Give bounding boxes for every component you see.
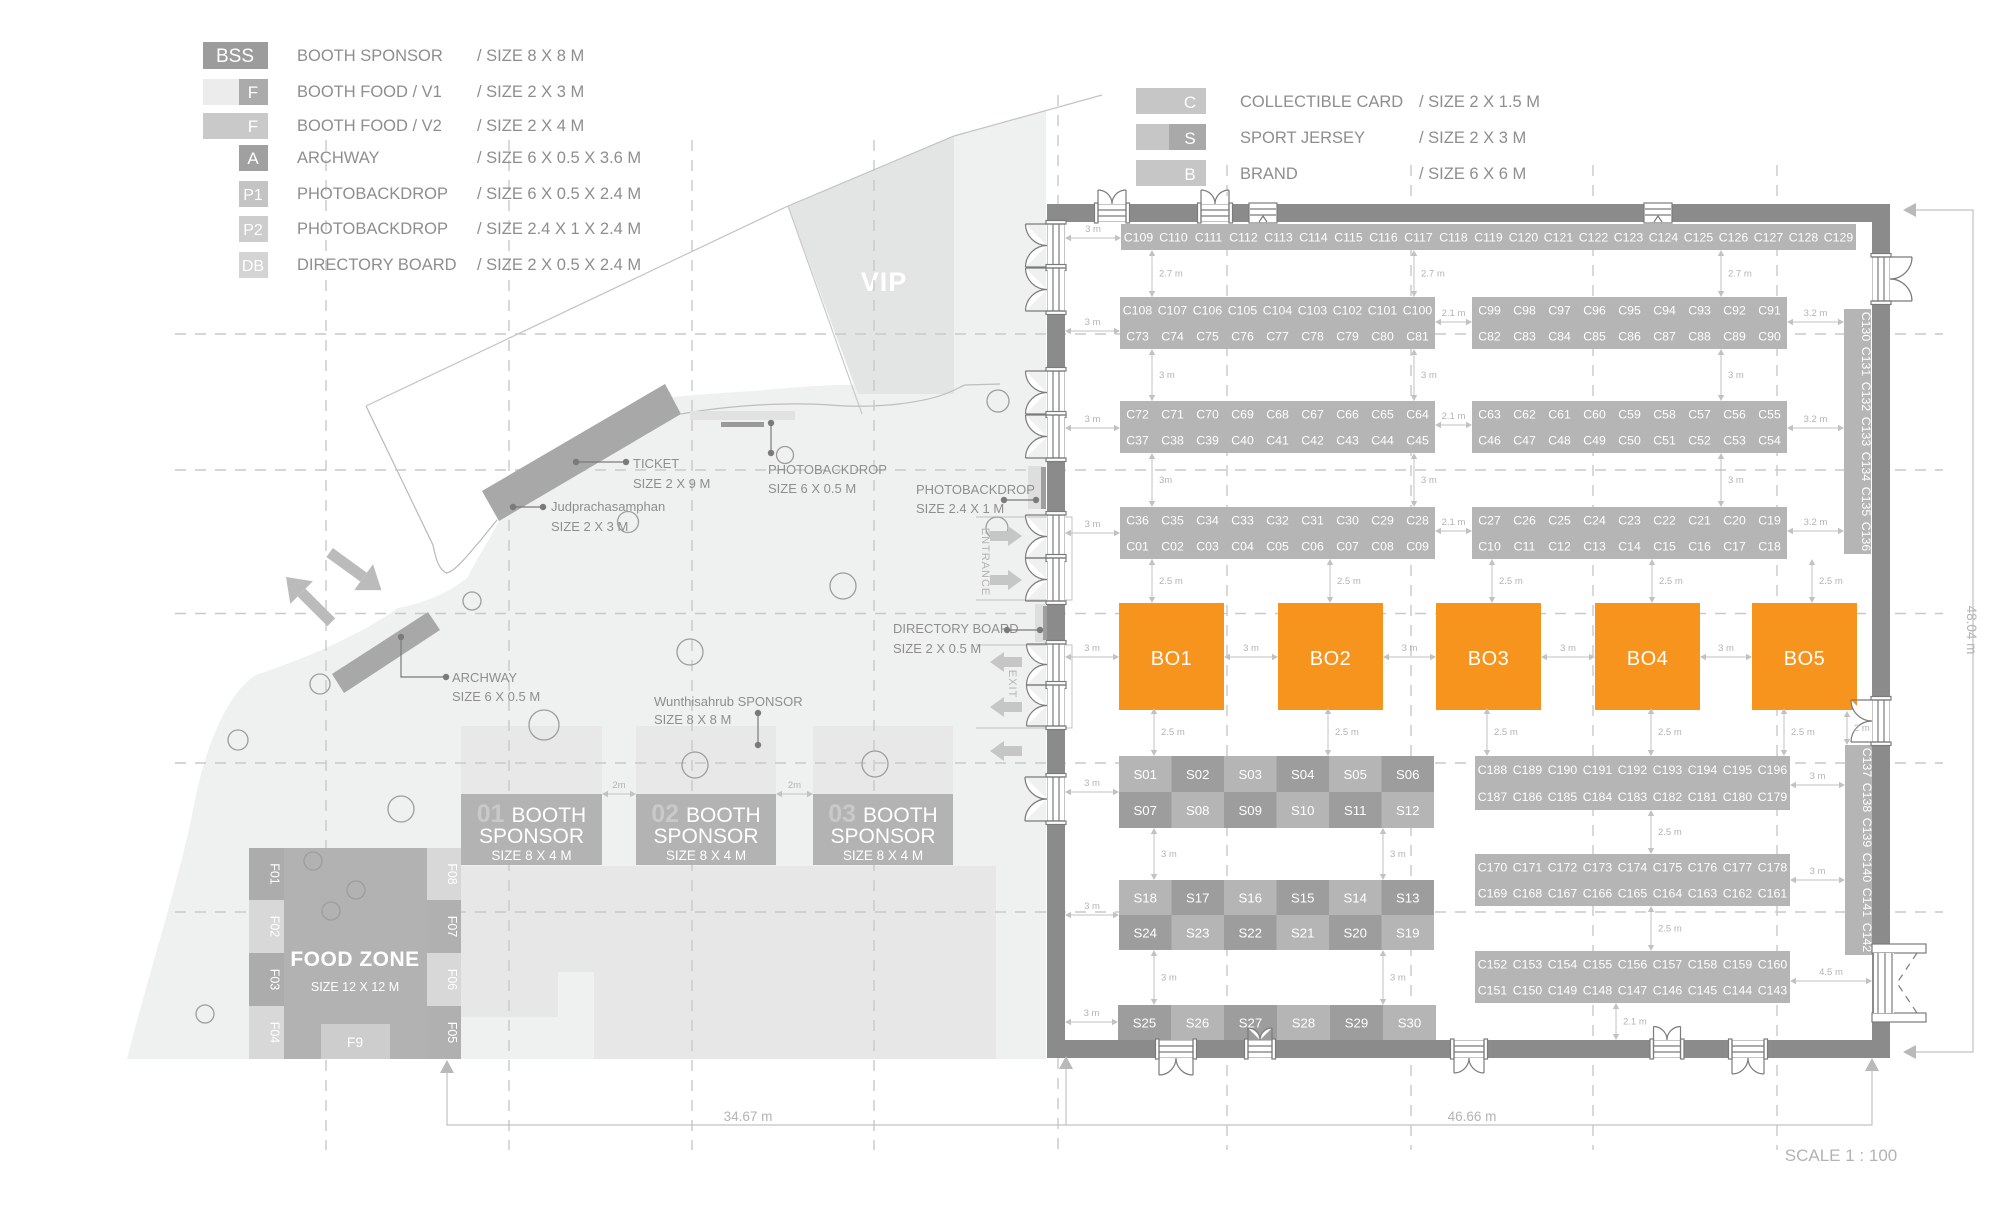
svg-text:C157: C157 [1653,957,1683,971]
svg-text:SPONSOR: SPONSOR [653,825,758,848]
svg-text:BO3: BO3 [1468,648,1510,670]
svg-text:C34: C34 [1196,513,1219,527]
svg-text:C74: C74 [1161,329,1184,343]
svg-text:C82: C82 [1478,329,1501,343]
svg-text:SIZE 2.4 X 1 M: SIZE 2.4 X 1 M [916,501,1004,516]
svg-text:C84: C84 [1548,329,1571,343]
svg-text:3 m: 3 m [1390,973,1406,984]
svg-text:S04: S04 [1291,767,1314,782]
svg-text:2.5 m: 2.5 m [1658,924,1682,935]
svg-text:C152: C152 [1478,957,1508,971]
svg-text:C187: C187 [1478,790,1508,804]
svg-text:S02: S02 [1186,767,1209,782]
svg-text:C167: C167 [1548,886,1578,900]
svg-text:S28: S28 [1292,1015,1315,1030]
svg-text:C134: C134 [1859,452,1873,482]
svg-text:SPONSOR: SPONSOR [830,825,935,848]
svg-text:C41: C41 [1266,433,1289,447]
svg-text:C162: C162 [1723,886,1753,900]
svg-text:C161: C161 [1758,886,1788,900]
svg-text:C42: C42 [1301,433,1324,447]
svg-text:C131: C131 [1859,347,1873,377]
svg-text:C107: C107 [1158,303,1188,317]
svg-text:C124: C124 [1649,230,1679,244]
svg-text:C166: C166 [1583,886,1613,900]
svg-text:2.7 m: 2.7 m [1728,269,1752,280]
svg-text:2.5 m: 2.5 m [1659,576,1683,587]
svg-text:C28: C28 [1406,513,1429,527]
svg-text:C159: C159 [1723,957,1753,971]
svg-text:C181: C181 [1688,790,1718,804]
svg-text:C43: C43 [1336,433,1359,447]
svg-text:C149: C149 [1548,983,1578,997]
svg-text:C21: C21 [1688,513,1711,527]
svg-text:/ SIZE 2 X 3 M: / SIZE 2 X 3 M [477,83,584,101]
svg-text:C151: C151 [1478,983,1508,997]
svg-text:3 m: 3 m [1161,849,1177,860]
svg-text:C62: C62 [1513,407,1536,421]
svg-text:F: F [248,83,258,102]
svg-text:SIZE 2 X 3 M: SIZE 2 X 3 M [551,519,628,534]
svg-text:C144: C144 [1723,983,1753,997]
svg-text:S19: S19 [1396,925,1419,940]
svg-text:F05: F05 [445,1022,459,1044]
svg-text:2m: 2m [788,780,801,791]
svg-text:S: S [1184,129,1195,148]
svg-text:2m: 2m [612,780,625,791]
svg-text:S15: S15 [1291,890,1314,905]
svg-text:3.2 m: 3.2 m [1804,517,1828,528]
svg-text:C25: C25 [1548,513,1571,527]
svg-text:BO1: BO1 [1151,648,1193,670]
svg-text:S13: S13 [1396,890,1419,905]
svg-text:C91: C91 [1758,303,1781,317]
svg-text:C63: C63 [1478,407,1501,421]
svg-text:3 m: 3 m [1810,771,1826,782]
svg-text:C01: C01 [1126,539,1149,553]
svg-text:3 m: 3 m [1421,370,1437,381]
svg-text:S17: S17 [1186,890,1209,905]
svg-text:02 BOOTH: 02 BOOTH [651,800,760,828]
svg-text:SIZE 6 X 0.5 M: SIZE 6 X 0.5 M [768,481,856,496]
svg-text:SIZE 6 X 0.5 M: SIZE 6 X 0.5 M [452,689,540,704]
svg-text:C100: C100 [1403,303,1433,317]
svg-text:C07: C07 [1336,539,1359,553]
svg-text:C49: C49 [1583,433,1606,447]
svg-text:C113: C113 [1264,230,1293,244]
svg-text:C19: C19 [1758,513,1781,527]
svg-text:S21: S21 [1291,925,1314,940]
svg-text:C71: C71 [1161,407,1184,421]
svg-text:C130: C130 [1859,312,1873,342]
svg-text:C76: C76 [1231,329,1254,343]
svg-text:C04: C04 [1231,539,1254,553]
svg-text:C47: C47 [1513,433,1536,447]
svg-text:/ SIZE 2 X 0.5 X 2.4 M: / SIZE 2 X 0.5 X 2.4 M [477,256,641,274]
svg-text:SIZE 8 X 4 M: SIZE 8 X 4 M [843,848,923,863]
svg-text:03 BOOTH: 03 BOOTH [828,800,937,828]
svg-text:F9: F9 [347,1034,364,1050]
svg-text:C112: C112 [1229,230,1258,244]
svg-text:C103: C103 [1298,303,1328,317]
svg-text:C122: C122 [1579,230,1609,244]
svg-text:/ SIZE 6 X 6 M: / SIZE 6 X 6 M [1419,165,1526,183]
svg-text:C172: C172 [1548,860,1578,874]
svg-text:S08: S08 [1186,803,1209,818]
svg-text:DIRECTORY BOARD: DIRECTORY BOARD [297,256,457,274]
svg-text:C194: C194 [1688,763,1718,777]
svg-text:C15: C15 [1653,539,1676,553]
svg-text:C40: C40 [1231,433,1254,447]
svg-text:4.5 m: 4.5 m [1819,967,1843,978]
svg-text:C174: C174 [1618,860,1648,874]
svg-text:2.7 m: 2.7 m [1421,269,1445,280]
svg-text:C176: C176 [1688,860,1718,874]
svg-text:SIZE 8 X 4 M: SIZE 8 X 4 M [491,848,571,863]
svg-text:C51: C51 [1653,433,1676,447]
svg-text:C163: C163 [1688,886,1718,900]
svg-text:PHOTOBACKDROP: PHOTOBACKDROP [297,220,448,238]
svg-text:C120: C120 [1509,230,1539,244]
svg-text:C: C [1184,93,1196,112]
svg-text:2.1 m: 2.1 m [1442,308,1466,319]
svg-text:C143: C143 [1758,983,1788,997]
svg-text:3.2 m: 3.2 m [1804,414,1828,425]
svg-text:3 m: 3 m [1810,866,1826,877]
svg-text:Wunthisahrub SPONSOR: Wunthisahrub SPONSOR [654,694,803,709]
svg-text:/ SIZE 6 X 0.5 X 3.6 M: / SIZE 6 X 0.5 X 3.6 M [477,149,641,167]
svg-text:S14: S14 [1344,890,1367,905]
svg-text:C96: C96 [1583,303,1606,317]
svg-text:BOOTH FOOD / V2: BOOTH FOOD / V2 [297,117,442,135]
svg-text:C101: C101 [1368,303,1398,317]
svg-text:FOOD ZONE: FOOD ZONE [290,948,419,971]
svg-text:BO5: BO5 [1784,648,1826,670]
svg-text:2.5 m: 2.5 m [1658,827,1682,838]
svg-text:C99: C99 [1478,303,1501,317]
svg-text:C165: C165 [1618,886,1648,900]
svg-text:C155: C155 [1583,957,1613,971]
svg-text:C54: C54 [1758,433,1781,447]
svg-text:C87: C87 [1653,329,1676,343]
svg-text:C147: C147 [1618,983,1648,997]
svg-text:F04: F04 [268,1022,282,1044]
svg-text:C182: C182 [1653,790,1683,804]
svg-text:C93: C93 [1688,303,1711,317]
svg-text:C13: C13 [1583,539,1606,553]
svg-text:C46: C46 [1478,433,1501,447]
svg-text:C111: C111 [1195,230,1223,244]
svg-text:SIZE 8 X 8 M: SIZE 8 X 8 M [654,712,731,727]
svg-text:SCALE 1 : 100: SCALE 1 : 100 [1785,1146,1897,1165]
svg-text:C86: C86 [1618,329,1641,343]
svg-text:C164: C164 [1653,886,1683,900]
svg-text:C83: C83 [1513,329,1536,343]
svg-text:2 m: 2 m [1854,723,1870,734]
svg-text:C58: C58 [1653,407,1676,421]
svg-text:C183: C183 [1618,790,1648,804]
svg-text:3 m: 3 m [1084,901,1100,912]
svg-text:S03: S03 [1239,767,1262,782]
svg-text:C18: C18 [1758,539,1781,553]
svg-text:C138: C138 [1860,783,1874,813]
svg-text:C180: C180 [1723,790,1753,804]
svg-text:F: F [248,117,258,136]
svg-text:S12: S12 [1396,803,1419,818]
svg-text:C61: C61 [1548,407,1571,421]
svg-text:C158: C158 [1688,957,1718,971]
svg-text:C116: C116 [1369,230,1398,244]
svg-text:3 m: 3 m [1421,475,1437,486]
svg-text:C95: C95 [1618,303,1641,317]
svg-text:C12: C12 [1548,539,1571,553]
svg-text:C50: C50 [1618,433,1641,447]
svg-text:C48: C48 [1548,433,1571,447]
svg-text:C85: C85 [1583,329,1606,343]
svg-text:C135: C135 [1859,487,1873,517]
svg-text:3 m: 3 m [1084,643,1100,654]
svg-text:S20: S20 [1344,925,1367,940]
svg-text:S29: S29 [1345,1015,1368,1030]
svg-text:S25: S25 [1133,1015,1156,1030]
svg-text:/ SIZE 8 X 8 M: / SIZE 8 X 8 M [477,47,584,65]
svg-text:A: A [247,149,259,168]
svg-text:C105: C105 [1228,303,1258,317]
svg-text:C24: C24 [1583,513,1606,527]
svg-text:F08: F08 [445,863,459,885]
svg-text:C97: C97 [1548,303,1571,317]
svg-text:C186: C186 [1513,790,1543,804]
svg-text:C64: C64 [1406,407,1429,421]
svg-text:C10: C10 [1478,539,1501,553]
svg-text:C65: C65 [1371,407,1394,421]
svg-text:C73: C73 [1126,329,1149,343]
svg-text:48.04 m: 48.04 m [1964,606,1979,655]
svg-text:TICKET: TICKET [633,456,679,471]
svg-text:S26: S26 [1186,1015,1209,1030]
svg-text:C78: C78 [1301,329,1324,343]
svg-text:C189: C189 [1513,763,1543,777]
svg-text:S07: S07 [1134,803,1157,818]
svg-text:/ SIZE 2 X 1.5 M: / SIZE 2 X 1.5 M [1419,93,1540,111]
svg-text:3.2 m: 3.2 m [1804,308,1828,319]
svg-text:C56: C56 [1723,407,1746,421]
svg-text:PHOTOBACKDROP: PHOTOBACKDROP [916,482,1035,497]
svg-text:C192: C192 [1618,763,1648,777]
svg-text:C137: C137 [1860,748,1874,778]
svg-text:C121: C121 [1544,230,1574,244]
svg-text:2.5 m: 2.5 m [1335,727,1359,738]
svg-text:C05: C05 [1266,539,1289,553]
svg-text:C67: C67 [1301,407,1324,421]
svg-text:C89: C89 [1723,329,1746,343]
svg-text:C68: C68 [1266,407,1289,421]
svg-text:C17: C17 [1723,539,1746,553]
svg-text:C59: C59 [1618,407,1641,421]
svg-text:SIZE 2 X 9 M: SIZE 2 X 9 M [633,476,710,491]
svg-text:C66: C66 [1336,407,1359,421]
svg-text:S18: S18 [1134,890,1157,905]
svg-text:C104: C104 [1263,303,1293,317]
svg-text:C115: C115 [1334,230,1363,244]
svg-text:C22: C22 [1653,513,1676,527]
svg-text:C171: C171 [1513,860,1543,874]
svg-text:C44: C44 [1371,433,1394,447]
svg-text:C16: C16 [1688,539,1711,553]
svg-text:C94: C94 [1653,303,1676,317]
svg-text:C184: C184 [1583,790,1613,804]
svg-text:C190: C190 [1548,763,1578,777]
svg-text:2.5 m: 2.5 m [1494,727,1518,738]
svg-text:/ SIZE 2.4 X 1 X 2.4 M: / SIZE 2.4 X 1 X 2.4 M [477,220,641,238]
svg-text:3 m: 3 m [1728,370,1744,381]
svg-text:C14: C14 [1618,539,1641,553]
svg-text:C140: C140 [1860,853,1874,883]
svg-text:C188: C188 [1478,763,1508,777]
svg-text:C11: C11 [1514,539,1536,553]
svg-text:C06: C06 [1301,539,1324,553]
svg-text:3 m: 3 m [1159,370,1175,381]
svg-text:COLLECTIBLE CARD: COLLECTIBLE CARD [1240,93,1403,111]
svg-text:S16: S16 [1239,890,1262,905]
svg-text:C106: C106 [1193,303,1223,317]
svg-text:3 m: 3 m [1084,778,1100,789]
svg-text:C123: C123 [1614,230,1644,244]
svg-text:C23: C23 [1618,513,1641,527]
svg-text:BOOTH FOOD / V1: BOOTH FOOD / V1 [297,83,442,101]
svg-text:C27: C27 [1478,513,1501,527]
svg-text:S01: S01 [1134,767,1157,782]
svg-text:2.1 m: 2.1 m [1623,1017,1647,1028]
svg-text:C109: C109 [1124,230,1154,244]
svg-text:C26: C26 [1513,513,1536,527]
svg-text:2.1 m: 2.1 m [1442,411,1466,422]
svg-text:C173: C173 [1583,860,1613,874]
svg-text:C177: C177 [1723,860,1753,874]
svg-text:C110: C110 [1159,230,1188,244]
svg-text:C178: C178 [1758,860,1788,874]
svg-text:C141: C141 [1860,888,1874,918]
svg-text:BO2: BO2 [1310,648,1352,670]
svg-text:2.5 m: 2.5 m [1658,727,1682,738]
svg-text:3 m: 3 m [1161,973,1177,984]
svg-text:C57: C57 [1688,407,1711,421]
svg-text:S24: S24 [1134,925,1157,940]
svg-text:/ SIZE 2 X 3 M: / SIZE 2 X 3 M [1419,129,1526,147]
svg-text:C185: C185 [1548,790,1578,804]
svg-text:SIZE 12 X 12 M: SIZE 12 X 12 M [311,980,399,994]
svg-text:C195: C195 [1723,763,1753,777]
svg-text:F03: F03 [268,969,282,991]
svg-text:C154: C154 [1548,957,1578,971]
svg-text:BO4: BO4 [1627,648,1669,670]
svg-text:C139: C139 [1860,818,1874,848]
svg-text:S11: S11 [1344,803,1367,818]
svg-text:2.1 m: 2.1 m [1442,517,1466,528]
svg-text:S06: S06 [1396,767,1419,782]
svg-text:BOOTH SPONSOR: BOOTH SPONSOR [297,47,443,65]
svg-text:S22: S22 [1239,925,1262,940]
svg-text:F07: F07 [445,916,459,938]
svg-text:C30: C30 [1336,513,1359,527]
svg-text:ENTRANCE: ENTRANCE [979,528,991,597]
svg-text:3 m: 3 m [1243,643,1259,654]
svg-text:F02: F02 [268,916,282,938]
svg-text:C146: C146 [1653,983,1683,997]
svg-text:F06: F06 [445,969,459,991]
svg-text:C196: C196 [1758,763,1788,777]
svg-text:S05: S05 [1344,767,1367,782]
svg-text:C125: C125 [1684,230,1714,244]
svg-text:C170: C170 [1478,860,1508,874]
svg-text:C128: C128 [1789,230,1819,244]
svg-text:PHOTOBACKDROP: PHOTOBACKDROP [768,462,887,477]
svg-text:B: B [1184,165,1195,184]
svg-text:PHOTOBACKDROP: PHOTOBACKDROP [297,185,448,203]
svg-text:F01: F01 [268,863,282,885]
svg-text:3 m: 3 m [1085,317,1101,328]
svg-text:C37: C37 [1126,433,1149,447]
svg-text:3 m: 3 m [1085,224,1101,235]
svg-text:C129: C129 [1824,230,1854,244]
svg-text:3 m: 3 m [1728,475,1744,486]
svg-text:C02: C02 [1161,539,1184,553]
svg-text:C102: C102 [1333,303,1363,317]
svg-text:SIZE 2 X 0.5 M: SIZE 2 X 0.5 M [893,641,981,656]
svg-text:S10: S10 [1291,803,1314,818]
svg-text:C81: C81 [1406,329,1429,343]
svg-text:C45: C45 [1406,433,1429,447]
svg-text:C179: C179 [1758,790,1788,804]
svg-text:C75: C75 [1196,329,1219,343]
svg-text:C132: C132 [1859,382,1873,412]
svg-text:3 m: 3 m [1084,1008,1100,1019]
svg-text:C145: C145 [1688,983,1718,997]
svg-text:2.5 m: 2.5 m [1337,576,1361,587]
svg-text:C175: C175 [1653,860,1683,874]
svg-text:C193: C193 [1653,763,1683,777]
svg-text:C55: C55 [1758,407,1781,421]
svg-text:BRAND: BRAND [1240,165,1298,183]
svg-text:C53: C53 [1723,433,1746,447]
svg-text:C33: C33 [1231,513,1254,527]
svg-text:C77: C77 [1266,329,1289,343]
svg-text:3 m: 3 m [1560,643,1576,654]
svg-text:C90: C90 [1758,329,1781,343]
svg-text:2.7 m: 2.7 m [1159,269,1183,280]
svg-text:3 m: 3 m [1390,849,1406,860]
svg-text:C70: C70 [1196,407,1219,421]
svg-text:C03: C03 [1196,539,1219,553]
svg-text:C133: C133 [1859,417,1873,447]
svg-text:/ SIZE 2 X 4 M: / SIZE 2 X 4 M [477,117,584,135]
svg-text:C35: C35 [1161,513,1184,527]
svg-text:SIZE 8 X 4 M: SIZE 8 X 4 M [666,848,746,863]
svg-text:2.5 m: 2.5 m [1791,727,1815,738]
svg-text:C29: C29 [1371,513,1394,527]
svg-text:34.67 m: 34.67 m [724,1109,773,1124]
svg-text:P1: P1 [243,187,263,204]
svg-text:SPONSOR: SPONSOR [479,825,584,848]
svg-text:/ SIZE 6 X 0.5 X 2.4 M: / SIZE 6 X 0.5 X 2.4 M [477,185,641,203]
svg-text:C36: C36 [1126,513,1149,527]
svg-text:Judprachasamphan: Judprachasamphan [551,499,665,514]
svg-text:SPORT JERSEY: SPORT JERSEY [1240,129,1365,147]
svg-text:S23: S23 [1186,925,1209,940]
svg-text:C92: C92 [1723,303,1746,317]
svg-text:46.66 m: 46.66 m [1448,1109,1497,1124]
svg-text:ARCHWAY: ARCHWAY [297,149,380,167]
